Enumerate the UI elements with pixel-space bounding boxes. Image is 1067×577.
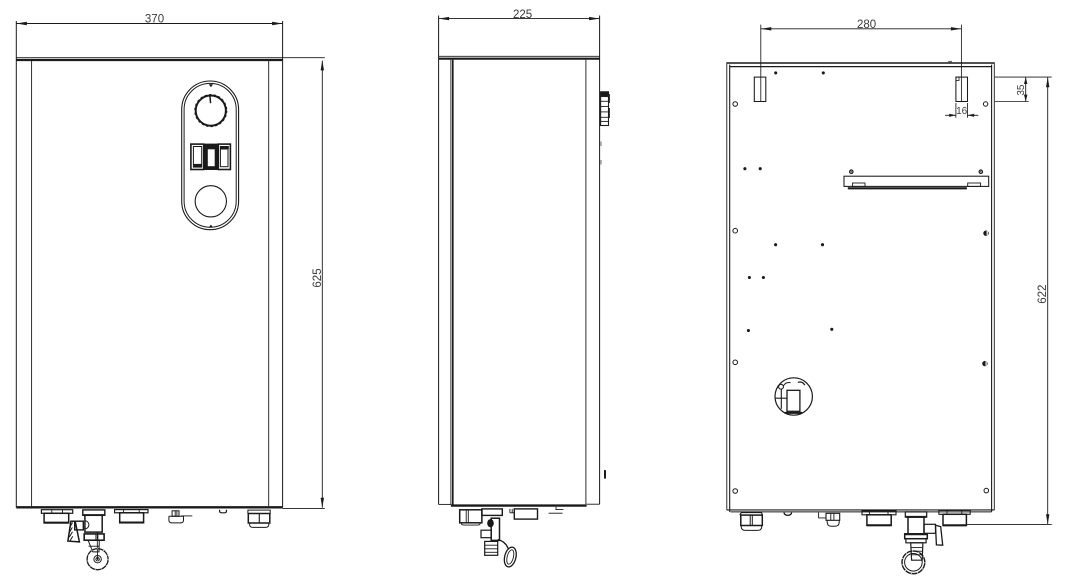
svg-text:625: 625 bbox=[312, 268, 324, 287]
svg-text:225: 225 bbox=[513, 9, 532, 21]
svg-text:16: 16 bbox=[956, 106, 968, 117]
svg-text:35: 35 bbox=[1016, 84, 1027, 96]
svg-text:280: 280 bbox=[857, 19, 876, 31]
svg-text:622: 622 bbox=[1037, 285, 1049, 304]
